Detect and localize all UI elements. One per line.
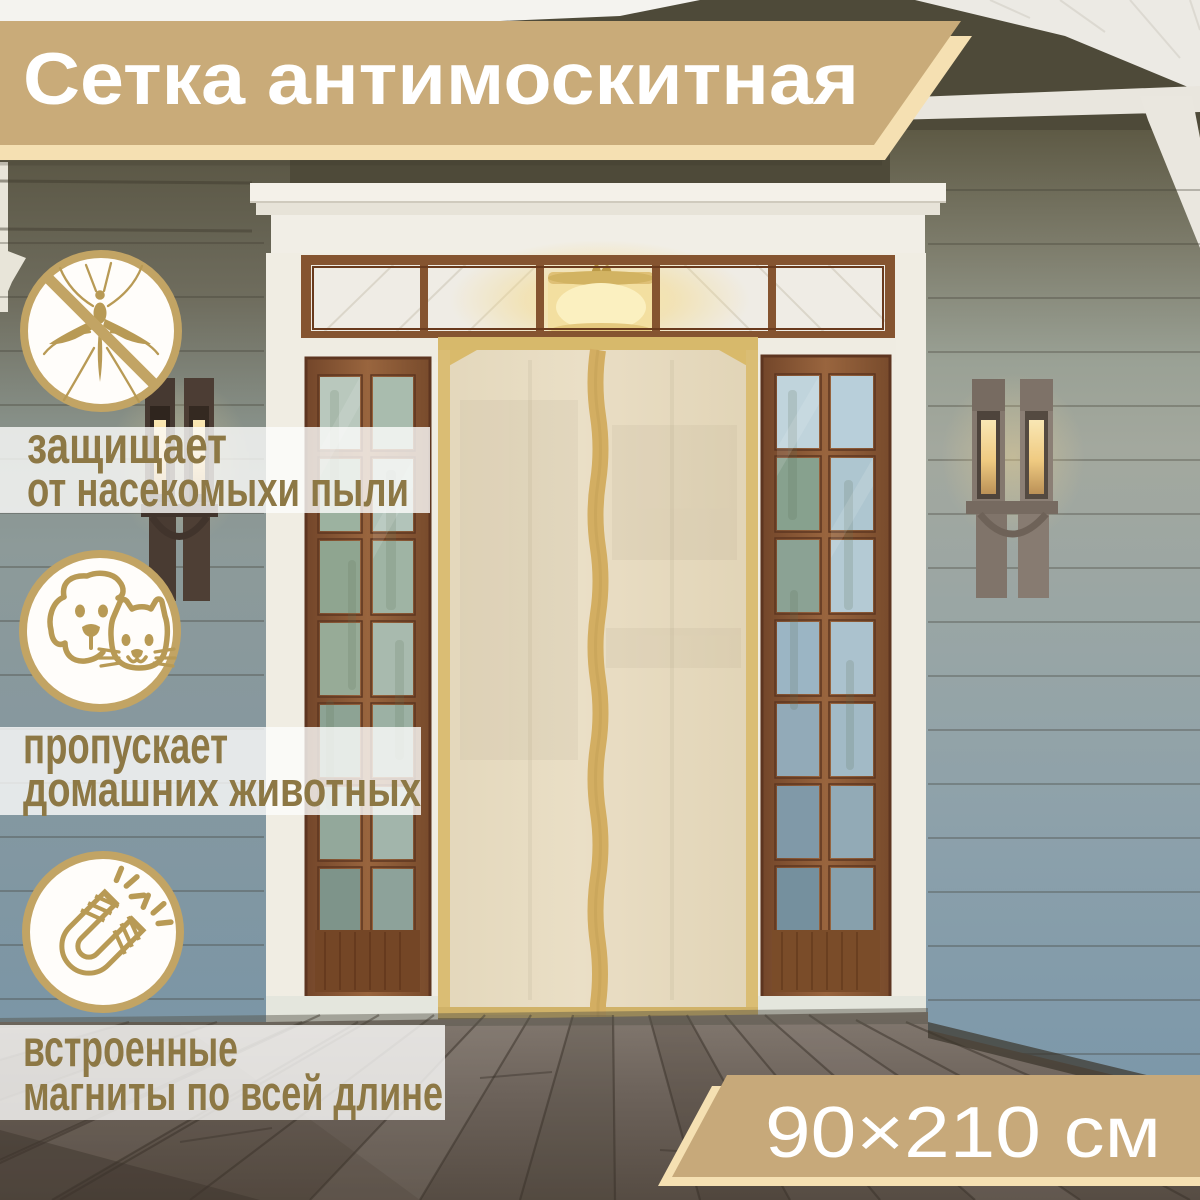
svg-text:от насекомыхи пыли: от насекомыхи пыли [27,463,409,517]
svg-text:магниты по всей длине: магниты по всей длине [23,1067,443,1121]
svg-text:90×210 см: 90×210 см [765,1093,1161,1173]
svg-text:домашних животных: домашних животных [23,763,421,817]
svg-text:Сетка антимоскитная: Сетка антимоскитная [23,39,859,120]
